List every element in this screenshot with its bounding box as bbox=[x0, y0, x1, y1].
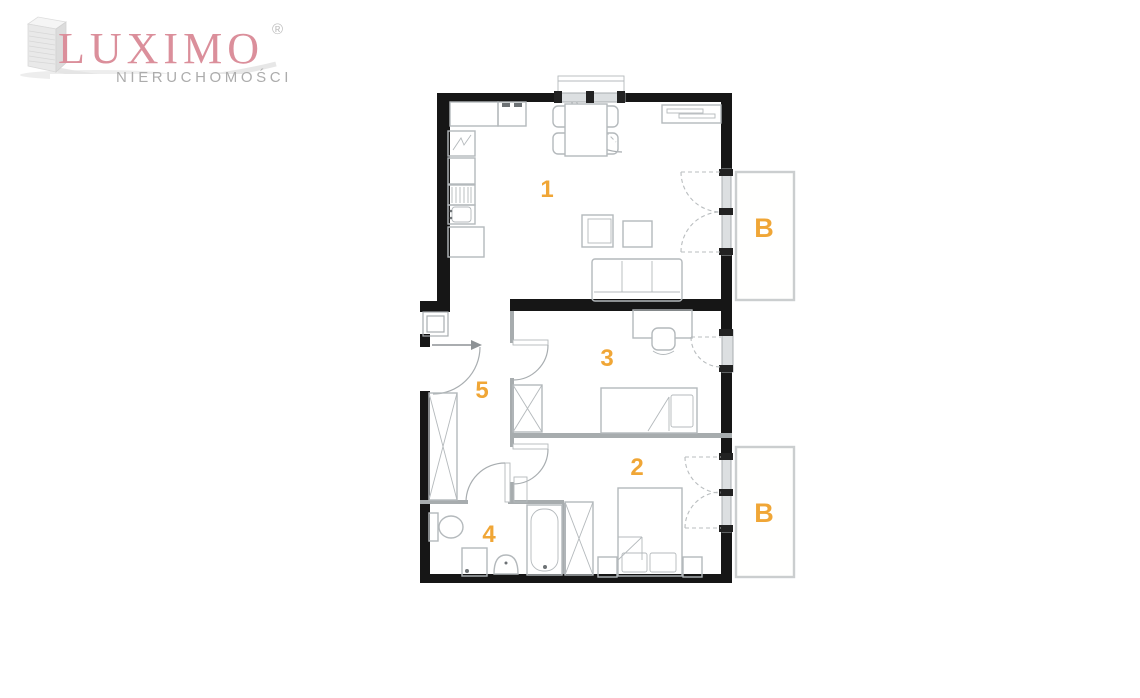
dining-set bbox=[553, 104, 618, 156]
room-label-1: 1 bbox=[540, 176, 553, 203]
utility-shaft bbox=[423, 312, 448, 336]
fridge bbox=[448, 131, 475, 156]
partition-walls bbox=[420, 311, 732, 574]
room-label-4: 4 bbox=[482, 521, 496, 548]
hallway-wardrobe bbox=[429, 393, 457, 500]
corner-duct bbox=[514, 477, 527, 502]
dining-table bbox=[565, 104, 607, 156]
double-bed bbox=[618, 488, 682, 576]
bathtub bbox=[527, 505, 562, 575]
bathroom-sink bbox=[494, 555, 518, 574]
apartment-floorplan: B B bbox=[0, 0, 1140, 698]
single-bed bbox=[601, 388, 697, 433]
washing-machine bbox=[462, 548, 487, 576]
room-label-5: 5 bbox=[475, 377, 488, 404]
door-bathroom bbox=[466, 463, 510, 502]
room-label-3: 3 bbox=[600, 345, 613, 372]
door-bedroom-2 bbox=[513, 444, 548, 484]
lounge-seating bbox=[582, 215, 682, 301]
desk-chair bbox=[652, 328, 675, 350]
armchair bbox=[582, 215, 613, 247]
room-label-2: 2 bbox=[630, 454, 643, 481]
tv-sideboard bbox=[662, 105, 721, 123]
balcony-bottom: B bbox=[736, 447, 794, 577]
bedroom-2-furniture bbox=[514, 477, 702, 577]
floor-plan-page: LUXIMO ® NIERUCHOMOŚCI bbox=[0, 0, 1140, 698]
side-table bbox=[623, 221, 652, 247]
kitchen-units bbox=[448, 102, 526, 257]
toilet bbox=[429, 513, 463, 541]
balcony-top-label: B bbox=[754, 213, 774, 243]
door-bedroom-3 bbox=[513, 340, 548, 380]
window-bedroom-3 bbox=[691, 329, 733, 372]
wardrobe bbox=[565, 502, 593, 575]
sofa bbox=[592, 259, 682, 301]
balcony-top: B bbox=[736, 172, 794, 300]
wardrobe bbox=[513, 385, 542, 432]
balcony-bottom-label: B bbox=[754, 498, 774, 528]
balcony-door-living-room bbox=[681, 169, 733, 255]
balcony-door-bedroom-2 bbox=[685, 453, 733, 532]
